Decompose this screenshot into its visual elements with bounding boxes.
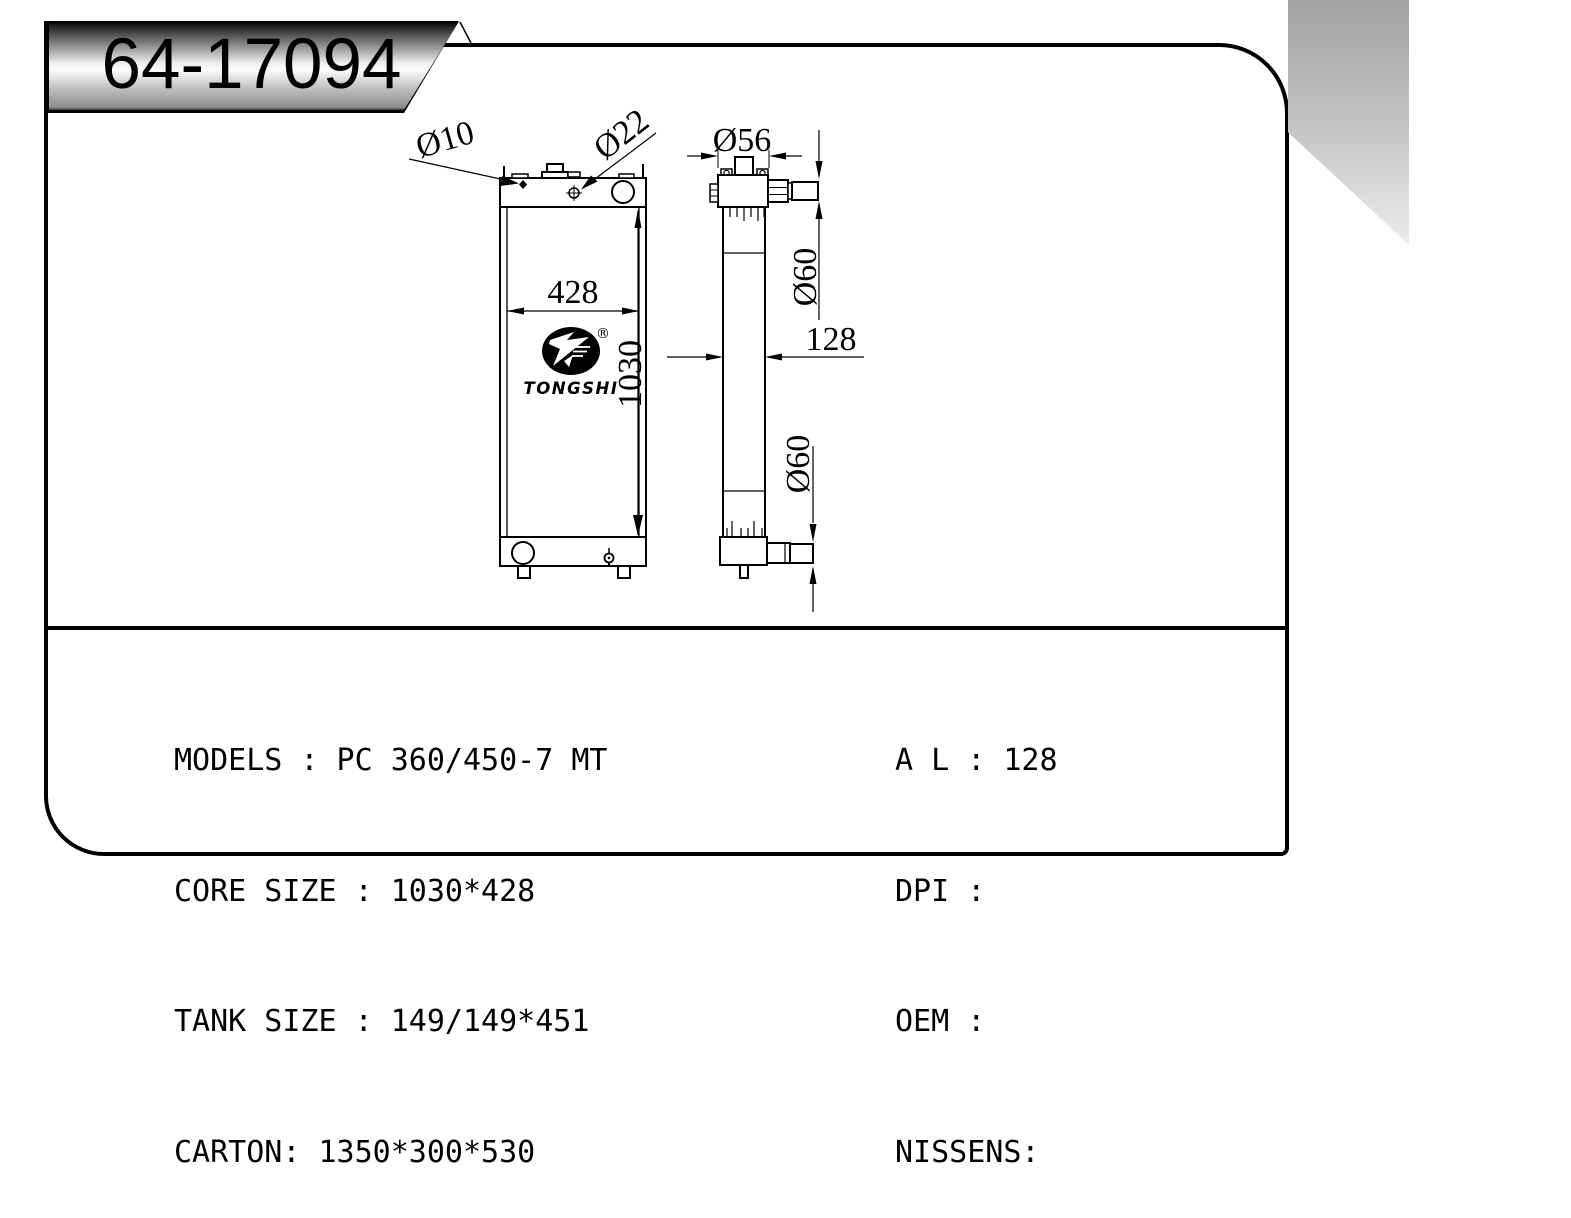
spec-row-tank-size: TANK SIZE : 149/149*451 xyxy=(174,1000,607,1044)
side-top-tube-ends xyxy=(730,208,764,221)
radiator-side-view xyxy=(710,157,818,578)
front-top-tab-left xyxy=(512,174,528,178)
spec-row-dpi: DPI : xyxy=(895,870,1058,914)
front-outlet-circle xyxy=(512,542,534,564)
filler-cap xyxy=(542,164,580,178)
front-view-dimensions: 428 1030 Ø10 Ø22 xyxy=(409,102,656,536)
side-left-bracket xyxy=(710,184,718,202)
spec-table-right: A L : 128 DPI : OEM : NISSENS: xyxy=(895,652,1058,1218)
spec-table-left: MODELS : PC 360/450-7 MT CORE SIZE : 103… xyxy=(174,652,607,1218)
spec-row-nissens: NISSENS: xyxy=(895,1131,1058,1175)
dim-filler-diameter: Ø22 xyxy=(587,102,656,167)
registered-mark: ® xyxy=(596,326,610,342)
spec-row-core-size: CORE SIZE : 1030*428 xyxy=(174,870,607,914)
front-inlet-circle xyxy=(612,181,634,203)
spec-row-al: A L : 128 xyxy=(895,739,1058,783)
spec-row-oem: OEM : xyxy=(895,1000,1058,1044)
dim-neck-diameter: Ø56 xyxy=(713,122,772,159)
side-bottom-pin xyxy=(740,565,748,578)
front-foot-right xyxy=(618,566,630,578)
side-bottom-tube-ends xyxy=(727,521,762,536)
side-top-pipe xyxy=(768,180,818,202)
spec-row-carton: CARTON: 1350*300*530 xyxy=(174,1131,607,1175)
side-bottom-pipe xyxy=(767,543,813,563)
tongshi-logo: ® TONGSHI xyxy=(524,326,619,398)
spec-row-models: MODELS : PC 360/450-7 MT xyxy=(174,739,607,783)
front-top-tab-right xyxy=(619,174,634,178)
logo-brand-text: TONGSHI xyxy=(524,379,619,398)
side-top-tank xyxy=(718,175,768,207)
dim-core-width: 428 xyxy=(548,274,599,311)
banner-notch-line xyxy=(460,22,471,43)
side-filler-neck xyxy=(735,157,753,175)
dim-hole-diameter: Ø10 xyxy=(412,114,478,166)
dim-bottom-pipe-diameter: Ø60 xyxy=(780,435,817,494)
dim-top-pipe-diameter: Ø60 xyxy=(787,248,824,307)
side-bottom-tank xyxy=(720,537,767,565)
dim-core-depth: 128 xyxy=(806,321,857,358)
front-foot-left xyxy=(518,566,530,578)
